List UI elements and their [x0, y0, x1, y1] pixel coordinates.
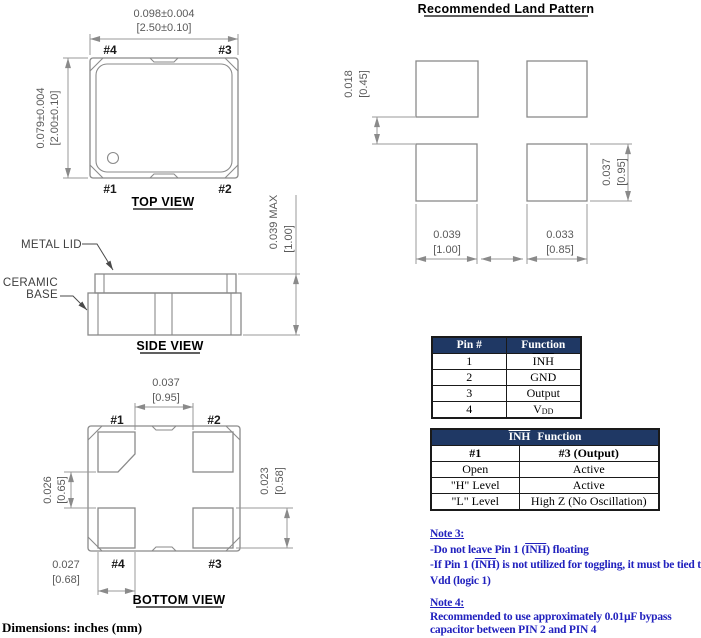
pad-2 [193, 432, 233, 472]
land-pattern-drawing: Recommended Land Pattern 0.018 [0.45] 0.… [343, 2, 632, 264]
vdd-text: V [533, 402, 542, 416]
top-height-dim-mm: [2.00±0.10] [49, 91, 61, 146]
land-gap-dim-inches: 0.018 [343, 70, 355, 98]
pad-width-dim-mm: [0.68] [52, 574, 80, 586]
note-3-line-3: Vdd (logic 1) [430, 574, 701, 590]
table-row: 3 Output [432, 386, 581, 402]
output-state-cell: High Z (No Oscillation) [519, 494, 659, 511]
pin-function-cell: GND [506, 370, 581, 386]
note-4: Note 4: Recommended to use approximately… [430, 597, 701, 638]
pin-label: #4 [103, 43, 117, 57]
inh-overlined-text: INH [475, 559, 496, 571]
bottom-vgap-dim-inches: 0.026 [42, 476, 54, 504]
land-pad-width-right-inches: 0.033 [546, 229, 574, 241]
land-pad-width-left-mm: [1.00] [433, 244, 461, 256]
package-outline [90, 58, 238, 178]
land-pattern-title: Recommended Land Pattern [418, 2, 595, 16]
datasheet-page: 0.098±0.004 [2.50±0.10] 0.079±0.004 [2.0… [0, 0, 701, 638]
note-3-title: Note 3: [430, 527, 701, 543]
pin-number-cell: 3 [432, 386, 506, 402]
land-pad [527, 61, 587, 117]
pin-number-cell: 1 [432, 354, 506, 370]
table-row: "H" Level Active [431, 478, 659, 494]
table-row: 4 VDD [432, 402, 581, 419]
bottom-vgap-dim-mm: [0.65] [56, 476, 68, 504]
corner-chamfer [90, 165, 103, 178]
table-row: 2 GND [432, 370, 581, 386]
side-view-drawing: METAL LID CERAMIC BASE 0.039 MAX [1.00] … [3, 194, 300, 353]
top-view-drawing: 0.098±0.004 [2.50±0.10] 0.079±0.004 [2.0… [35, 8, 238, 209]
pin-table-header-row: Pin # Function [432, 337, 581, 354]
ceramic-base-label-1: CERAMIC [3, 277, 58, 289]
inh-overlined-text: INH [509, 431, 531, 443]
metal-lid-outline [96, 64, 232, 172]
bottom-view-title: BOTTOM VIEW [133, 593, 226, 607]
bottom-view-drawing: 0.037 [0.95] 0.026 [0.65] 0.023 [0.58] 0… [42, 377, 293, 607]
inh-function-table: INHFunction #1 #3 (Output) Open Active "… [430, 428, 660, 511]
land-pad-width-right-mm: [0.85] [546, 244, 574, 256]
metal-lid-label: METAL LID [21, 239, 82, 251]
package-outline-bottom [88, 426, 240, 551]
top-width-dim-mm: [2.50±0.10] [137, 22, 192, 34]
inh-col-header-pin1: #1 [431, 446, 519, 462]
table-row: 1 INH [432, 354, 581, 370]
inh-col-header-output: #3 (Output) [519, 446, 659, 462]
note-3: Note 3: -Do not leave Pin 1 (INH) floati… [430, 527, 701, 589]
pin-label: #1 [110, 413, 124, 427]
top-width-dim-inches: 0.098±0.004 [133, 8, 194, 20]
pin-number-header: Pin # [432, 337, 506, 354]
corner-chamfer [90, 58, 103, 71]
pad-3 [193, 508, 233, 548]
top-view-title: TOP VIEW [131, 195, 194, 209]
side-view-title: SIDE VIEW [136, 339, 203, 353]
pin-function-cell: INH [506, 354, 581, 370]
units-note: Dimensions: inches (mm) [2, 620, 142, 636]
ceramic-base-side [88, 293, 241, 335]
land-pad-width-left-inches: 0.039 [433, 229, 461, 241]
note-4-line-2: capacitor between PIN 2 and PIN 4 [430, 624, 701, 638]
pad-height-dim-inches: 0.023 [259, 467, 271, 495]
note-4-line-1: Recommended to use approximately 0.01µF … [430, 611, 701, 625]
output-state-cell: Active [519, 478, 659, 494]
leader-line [60, 296, 87, 310]
pin-function-cell: Output [506, 386, 581, 402]
pin1-indicator-dot [108, 153, 119, 164]
top-height-dim-inches: 0.079±0.004 [35, 87, 47, 148]
pin-number-cell: 2 [432, 370, 506, 386]
bottom-gap-dim-inches: 0.037 [152, 377, 180, 389]
pin-label: #1 [103, 182, 117, 196]
table-row: "L" Level High Z (No Oscillation) [431, 494, 659, 511]
inh-table-title-row: INHFunction [431, 429, 659, 446]
corner-chamfer [225, 58, 238, 71]
inh-state-cell: "H" Level [431, 478, 519, 494]
vdd-subscript: DD [542, 407, 554, 416]
pad-1-chamfered [98, 432, 135, 472]
bottom-gap-dim-mm: [0.95] [152, 392, 180, 404]
land-gap-dim-mm: [0.45] [358, 70, 370, 98]
side-height-dim-inches: 0.039 MAX [268, 194, 280, 249]
pad-width-dim-inches: 0.027 [52, 559, 80, 571]
note-3-line-1: -Do not leave Pin 1 (INH) floating [430, 543, 701, 559]
land-pad [527, 144, 587, 201]
note-4-title: Note 4: [430, 597, 701, 611]
leader-line [82, 244, 113, 270]
corner-chamfer [88, 426, 102, 440]
pin-label: #3 [208, 557, 222, 571]
inh-overlined-text: INH [525, 544, 546, 556]
ceramic-base-label-2: BASE [26, 289, 58, 301]
function-header: Function [506, 337, 581, 354]
inh-table-title: INHFunction [431, 429, 659, 446]
pin-function-table: Pin # Function 1 INH 2 GND 3 Output 4 VD… [431, 336, 582, 419]
note-3-line-2: -If Pin 1 (INH) is not utilized for togg… [430, 558, 701, 574]
metal-lid-side [95, 274, 236, 293]
pin-label: #4 [111, 557, 125, 571]
land-pad-height-dim-inches: 0.037 [601, 158, 613, 186]
pin-function-cell: VDD [506, 402, 581, 419]
side-height-dim-mm: [1.00] [283, 225, 295, 253]
inh-table-subheader-row: #1 #3 (Output) [431, 446, 659, 462]
pin-number-cell: 4 [432, 402, 506, 419]
inh-state-cell: "L" Level [431, 494, 519, 511]
output-state-cell: Active [519, 462, 659, 478]
corner-chamfer [225, 165, 238, 178]
land-pad [416, 61, 478, 117]
land-pad-height-dim-mm: [0.95] [616, 158, 628, 186]
pad-height-dim-mm: [0.58] [274, 467, 286, 495]
pin-label: #3 [218, 43, 232, 57]
table-row: Open Active [431, 462, 659, 478]
corner-chamfer [88, 537, 102, 551]
inh-overlined-text: INH [533, 354, 554, 368]
inh-state-cell: Open [431, 462, 519, 478]
pin-label: #2 [218, 182, 232, 196]
land-pad [416, 144, 477, 201]
pad-4 [98, 508, 135, 548]
pin-label: #2 [207, 413, 221, 427]
